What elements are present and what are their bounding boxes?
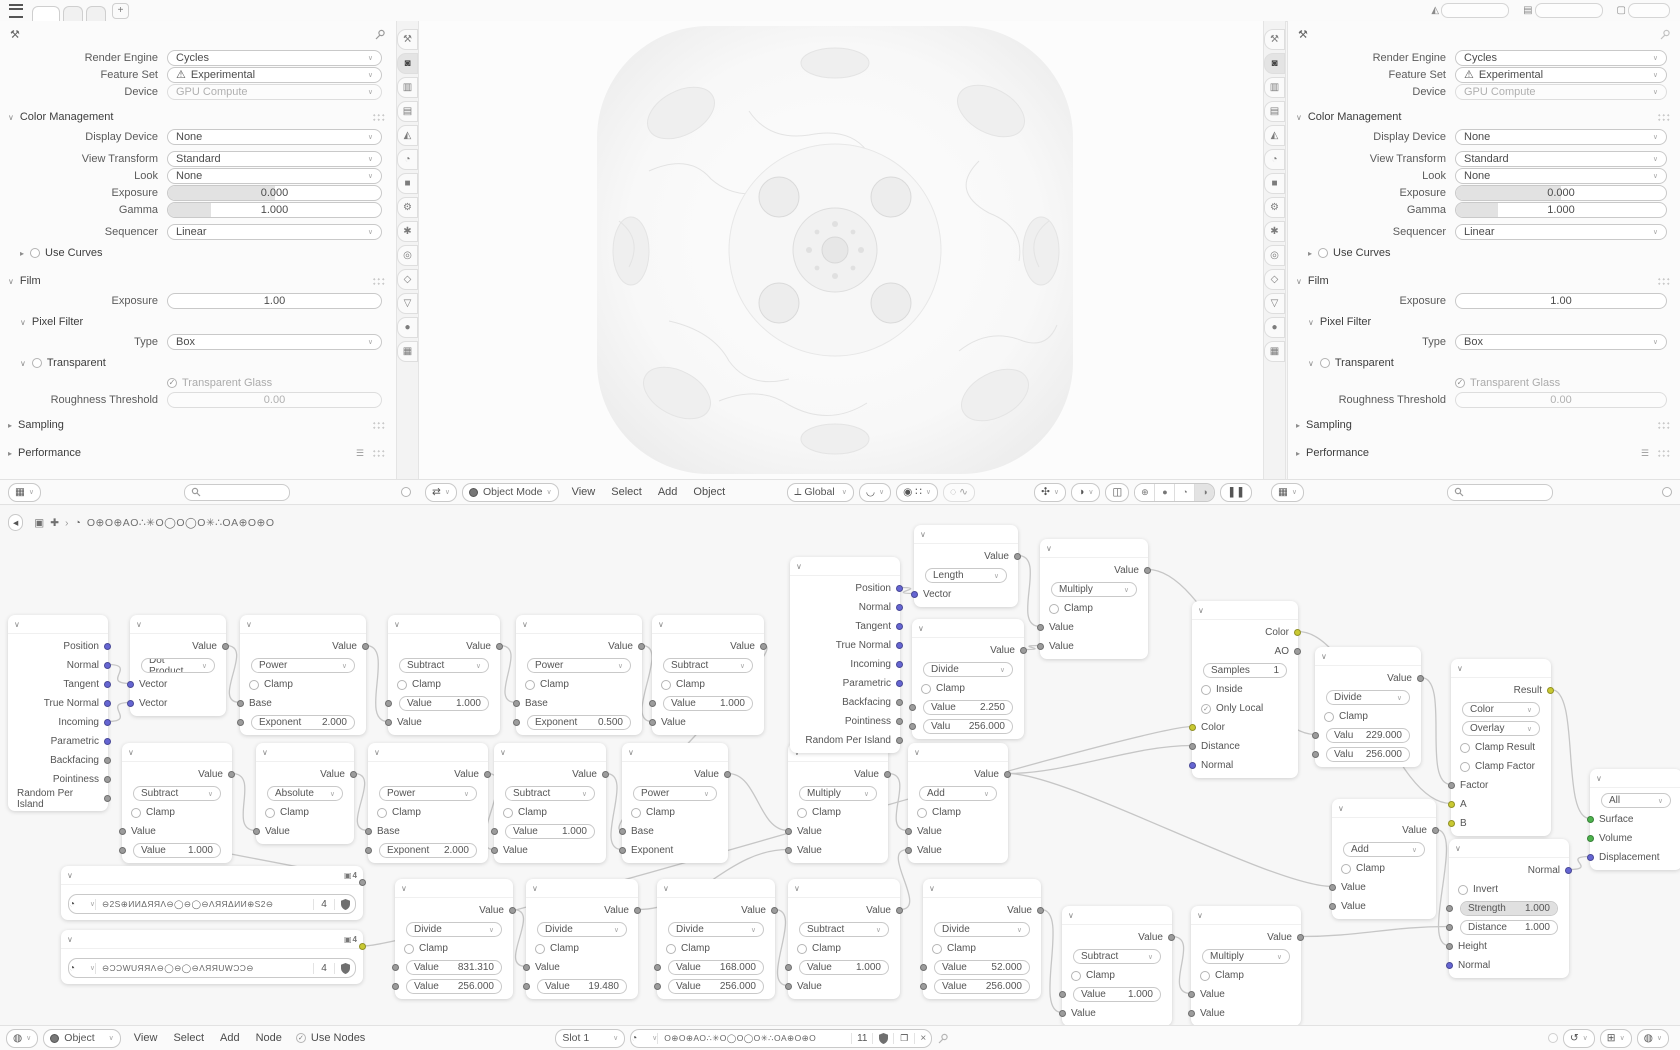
menu-select[interactable]: Select bbox=[611, 486, 642, 498]
math-divide[interactable]: ∨ValueDivide∨ClampValue831.310Value256.0… bbox=[395, 879, 513, 999]
node-collapse-arrow[interactable]: ∨ bbox=[1590, 769, 1680, 788]
input-socket-b[interactable] bbox=[1448, 820, 1455, 827]
input-socket-exponent[interactable] bbox=[619, 847, 626, 854]
math-add[interactable]: ∨ValueAdd∨ClampValueValue bbox=[908, 743, 1008, 863]
math-multiply[interactable]: ∨ValueMultiply∨ClampValueValue bbox=[1191, 906, 1301, 1026]
viewport-3d[interactable] bbox=[419, 21, 1263, 479]
node-collapse-arrow[interactable]: ∨ bbox=[790, 557, 900, 576]
value-field-value[interactable]: Value256.000 bbox=[668, 979, 764, 994]
properties-tab-3[interactable]: ▤ bbox=[1264, 101, 1285, 122]
math-subtract[interactable]: ∨ValueSubtract∨ClampValue1.000Value bbox=[788, 879, 900, 999]
value-field-value[interactable]: Value52.000 bbox=[934, 960, 1030, 975]
pin-icon[interactable] bbox=[1660, 29, 1671, 40]
node-collapse-arrow[interactable]: ∨ bbox=[908, 743, 1008, 762]
properties-tab-8[interactable]: ✱ bbox=[1264, 221, 1285, 242]
value-field-value[interactable]: Value1.000 bbox=[505, 824, 595, 839]
use-nodes-toggle[interactable]: ✓Use Nodes bbox=[296, 1032, 365, 1044]
value-field-valu[interactable]: Valu256.000 bbox=[923, 719, 1013, 734]
operation-dropdown[interactable]: Power∨ bbox=[379, 786, 477, 801]
checkbox-clamp[interactable]: Clamp bbox=[908, 803, 1008, 822]
node-collapse-arrow[interactable]: ∨ bbox=[1449, 839, 1569, 858]
search-input[interactable] bbox=[184, 484, 290, 501]
checkbox-clamp[interactable]: Clamp bbox=[526, 939, 638, 958]
properties-tab-10[interactable]: ◇ bbox=[1264, 269, 1285, 290]
output-socket-value[interactable] bbox=[1004, 771, 1011, 778]
math-divide[interactable]: ∨ValueDivide∨ClampValueValue19.480 bbox=[526, 879, 638, 999]
operation-dropdown[interactable]: Subtract∨ bbox=[663, 658, 753, 673]
value-field-exponent[interactable]: Exponent0.500 bbox=[527, 715, 631, 730]
math-multiply[interactable]: ∨ValueMultiply∨ClampValueValue bbox=[1040, 539, 1148, 659]
math-multiply[interactable]: ∨ValueMultiply∨ClampValueValue bbox=[788, 743, 888, 863]
checkbox-clamp[interactable]: Clamp bbox=[622, 803, 728, 822]
input-socket-value[interactable] bbox=[785, 847, 792, 854]
search-input[interactable] bbox=[1447, 484, 1553, 501]
checkbox-row-transparent-glass[interactable]: ✓Transparent Glass bbox=[1288, 374, 1680, 391]
output-socket-result[interactable] bbox=[1547, 687, 1554, 694]
input-socket-value[interactable] bbox=[385, 719, 392, 726]
input-socket-valu[interactable] bbox=[1312, 751, 1319, 758]
input-socket-vector[interactable] bbox=[127, 681, 134, 688]
fake-user-shield-icon[interactable] bbox=[334, 963, 355, 974]
input-socket-value[interactable] bbox=[392, 964, 399, 971]
output-socket-value[interactable] bbox=[884, 771, 891, 778]
input-socket-vector[interactable] bbox=[911, 591, 918, 598]
input-socket-base[interactable] bbox=[513, 700, 520, 707]
input-socket-value[interactable] bbox=[920, 983, 927, 990]
input-socket-value[interactable] bbox=[119, 847, 126, 854]
math-divide[interactable]: ∨ValueDivide∨ClampValue52.000Value256.00… bbox=[923, 879, 1041, 999]
input-socket-base[interactable] bbox=[365, 828, 372, 835]
input-socket-value[interactable] bbox=[491, 847, 498, 854]
gamma-slider[interactable]: 1.000 bbox=[167, 202, 382, 218]
output-socket-value[interactable] bbox=[1417, 675, 1424, 682]
output-socket-true-normal[interactable] bbox=[896, 642, 903, 649]
menu-add[interactable]: Add bbox=[220, 1032, 240, 1044]
input-socket-vector[interactable] bbox=[127, 700, 134, 707]
operation-dropdown[interactable]: Multiply∨ bbox=[1202, 949, 1290, 964]
value-field-value[interactable]: Value1.000 bbox=[1073, 987, 1161, 1002]
output-socket-value[interactable] bbox=[896, 907, 903, 914]
panel-header-color-management[interactable]: ∨Color Management bbox=[1288, 106, 1680, 128]
output-socket-value[interactable] bbox=[760, 643, 767, 650]
output-socket-incoming[interactable] bbox=[896, 661, 903, 668]
output-socket-ao[interactable] bbox=[1294, 648, 1301, 655]
math-subtract[interactable]: ∨ValueSubtract∨ClampValue1.000Value bbox=[1062, 906, 1172, 1026]
properties-tab-5[interactable]: ◔ bbox=[1264, 149, 1285, 170]
ambient-occlusion-node[interactable]: ∨ColorAOSamples1Inside✓Only LocalColorDi… bbox=[1192, 601, 1298, 778]
input-socket-value[interactable] bbox=[649, 719, 656, 726]
operation-dropdown[interactable]: Multiply∨ bbox=[799, 786, 877, 801]
device-dropdown[interactable]: GPU Compute∨ bbox=[167, 84, 382, 100]
math-power[interactable]: ∨ValuePower∨ClampBaseExponent0.500 bbox=[516, 615, 642, 735]
operation-dropdown[interactable]: Multiply∨ bbox=[1051, 582, 1137, 597]
pin-icon[interactable] bbox=[938, 1033, 949, 1044]
node-collapse-arrow[interactable]: ∨ bbox=[914, 525, 1018, 544]
properties-tab-4[interactable]: ◭ bbox=[1264, 125, 1285, 146]
overlays-dropdown[interactable]: ◑∨ bbox=[1071, 483, 1100, 502]
properties-tab-6[interactable]: ■ bbox=[1264, 173, 1285, 194]
feature-set-dropdown[interactable]: ⚠Experimental∨ bbox=[1455, 67, 1667, 83]
input-socket-value[interactable] bbox=[654, 964, 661, 971]
material-name-field[interactable]: O⊕O⊕AO∴✳O◯O◯O✳∴OA⊕O⊕O bbox=[658, 1033, 851, 1044]
value-field-value[interactable]: Value2.250 bbox=[923, 700, 1013, 715]
output-socket-normal[interactable] bbox=[1565, 867, 1572, 874]
value-field-value[interactable]: Value256.000 bbox=[406, 979, 502, 994]
panel-header-transparent[interactable]: ∨Transparent bbox=[1288, 352, 1680, 374]
input-socket-valu[interactable] bbox=[1312, 732, 1319, 739]
output-socket-pointiness[interactable] bbox=[896, 718, 903, 725]
checkbox-row-transparent-glass[interactable]: ✓Transparent Glass bbox=[0, 374, 396, 391]
checkbox-clamp[interactable]: Clamp bbox=[395, 939, 513, 958]
panel-header-film[interactable]: ∨Film bbox=[1288, 270, 1680, 292]
input-socket-value[interactable] bbox=[491, 828, 498, 835]
checkbox-invert[interactable]: Invert bbox=[1449, 880, 1569, 899]
menu-select[interactable]: Select bbox=[173, 1032, 204, 1044]
input-socket-base[interactable] bbox=[237, 700, 244, 707]
properties-editor-icon[interactable]: ⚒ bbox=[10, 28, 20, 41]
properties-editor-icon[interactable]: ⚒ bbox=[1298, 28, 1308, 41]
properties-tab-10[interactable]: ◇ bbox=[397, 269, 418, 290]
roughness-threshold-field[interactable]: 0.00 bbox=[167, 392, 382, 408]
properties-tab-4[interactable]: ◭ bbox=[397, 125, 418, 146]
value-field-value[interactable]: Value1.000 bbox=[399, 696, 489, 711]
output-socket-value[interactable] bbox=[1020, 647, 1027, 654]
pin-icon[interactable] bbox=[375, 29, 386, 40]
value-field-valu[interactable]: Valu229.000 bbox=[1326, 728, 1410, 743]
output-socket-value[interactable] bbox=[1144, 567, 1151, 574]
panel-header-transparent[interactable]: ∨Transparent bbox=[0, 352, 396, 374]
look-dropdown[interactable]: None∨ bbox=[1455, 168, 1667, 184]
value-field-exponent[interactable]: Exponent2.000 bbox=[379, 843, 477, 858]
checkbox-only-local[interactable]: ✓Only Local bbox=[1192, 699, 1298, 718]
display-device-dropdown[interactable]: None∨ bbox=[167, 129, 382, 145]
look-dropdown[interactable]: None∨ bbox=[167, 168, 382, 184]
checkbox-clamp[interactable]: Clamp bbox=[240, 675, 366, 694]
panel-header-sampling[interactable]: ▸Sampling bbox=[1288, 414, 1680, 436]
input-socket-value[interactable] bbox=[253, 828, 260, 835]
input-socket-distance[interactable] bbox=[1446, 924, 1453, 931]
output-socket[interactable] bbox=[359, 943, 366, 950]
output-socket-value[interactable] bbox=[509, 907, 516, 914]
menu-node[interactable]: Node bbox=[256, 1032, 282, 1044]
output-socket-position[interactable] bbox=[104, 643, 111, 650]
input-socket-strength[interactable] bbox=[1446, 905, 1453, 912]
shading-wireframe-button[interactable]: ⊕ bbox=[1135, 484, 1155, 501]
properties-tab-11[interactable]: ▽ bbox=[1264, 293, 1285, 314]
view-transform-dropdown[interactable]: Standard∨ bbox=[1455, 151, 1667, 167]
node-collapse-arrow[interactable]: ∨ bbox=[1332, 799, 1436, 818]
material-output-node[interactable]: ∨All∨SurfaceVolumeDisplacement bbox=[1590, 769, 1680, 870]
checkbox-clamp[interactable]: Clamp bbox=[788, 803, 888, 822]
checkbox-clamp[interactable]: Clamp bbox=[923, 939, 1041, 958]
menu-add[interactable]: Add bbox=[658, 486, 678, 498]
node-collapse-arrow[interactable]: ∨ bbox=[912, 619, 1024, 638]
math-divide[interactable]: ∨ValueDivide∨ClampValu229.000Valu256.000 bbox=[1315, 647, 1421, 767]
properties-tab-2[interactable]: ▥ bbox=[1264, 77, 1285, 98]
output-socket-random-per-island[interactable] bbox=[104, 795, 111, 802]
input-socket-value[interactable] bbox=[523, 964, 530, 971]
math-subtract[interactable]: ∨ValueSubtract∨ClampValue1.000Value bbox=[388, 615, 500, 735]
image-texture-node[interactable]: ∨▣4 ◔∨ ⊖ƆƆWUЯЯΛ⊖◯⊖◯⊖ΛЯЯUWƆƆ⊖ 4 bbox=[61, 930, 363, 984]
device-dropdown[interactable]: GPU Compute∨ bbox=[1455, 84, 1667, 100]
operation-dropdown[interactable]: Subtract∨ bbox=[133, 786, 221, 801]
output-socket-value[interactable] bbox=[1168, 934, 1175, 941]
xray-toggle[interactable]: ◫ bbox=[1105, 483, 1129, 502]
checkbox-clamp[interactable]: Clamp bbox=[516, 675, 642, 694]
image-browse-icon[interactable]: ◔∨ bbox=[69, 899, 96, 910]
output-socket-parametric[interactable] bbox=[104, 738, 111, 745]
panel-header-performance[interactable]: ▸Performance☰ bbox=[1288, 442, 1680, 464]
roughness-threshold-field[interactable]: 0.00 bbox=[1455, 392, 1667, 408]
properties-tab-1[interactable]: ◙ bbox=[1264, 53, 1285, 74]
workspace-tab[interactable] bbox=[86, 6, 106, 21]
input-socket-volume[interactable] bbox=[1587, 835, 1594, 842]
checkbox-clamp[interactable]: Clamp bbox=[1040, 599, 1148, 618]
operation-dropdown[interactable]: Dot Product∨ bbox=[141, 658, 215, 673]
input-socket-normal[interactable] bbox=[1446, 962, 1453, 969]
display-device-dropdown[interactable]: None∨ bbox=[1455, 129, 1667, 145]
checkbox-clamp[interactable]: Clamp bbox=[1062, 966, 1172, 985]
checkbox-clamp[interactable]: Clamp bbox=[368, 803, 488, 822]
output-socket-value[interactable] bbox=[484, 771, 491, 778]
geometry-node[interactable]: ∨PositionNormalTangentTrue NormalIncomin… bbox=[790, 557, 900, 753]
math-divide[interactable]: ∨ValueDivide∨ClampValue2.250Valu256.000 bbox=[912, 619, 1024, 739]
checkbox-clamp[interactable]: Clamp bbox=[657, 939, 775, 958]
value-field-distance[interactable]: Distance1.000 bbox=[1460, 920, 1558, 935]
input-socket-value[interactable] bbox=[785, 983, 792, 990]
checkbox-clamp[interactable]: Clamp bbox=[388, 675, 500, 694]
panel-header-use-curves[interactable]: ▸Use Curves bbox=[0, 242, 396, 264]
image-browse-icon[interactable]: ◔∨ bbox=[69, 963, 96, 974]
node-collapse-arrow[interactable]: ∨ bbox=[1451, 659, 1551, 678]
checkbox-clamp[interactable]: Clamp bbox=[912, 679, 1024, 698]
output-socket-parametric[interactable] bbox=[896, 680, 903, 687]
checkbox-clamp[interactable]: Clamp bbox=[788, 939, 900, 958]
properties-tab-13[interactable]: ▦ bbox=[1264, 341, 1285, 362]
node-collapse-arrow[interactable]: ∨ bbox=[1191, 906, 1301, 925]
node-collapse-arrow[interactable]: ∨ bbox=[494, 743, 606, 762]
node-collapse-arrow[interactable]: ∨ bbox=[788, 879, 900, 898]
fake-user-shield-icon[interactable] bbox=[334, 899, 355, 910]
operation-dropdown[interactable]: Divide∨ bbox=[923, 662, 1013, 677]
value-field-exponent[interactable]: Exponent2.000 bbox=[251, 715, 355, 730]
value-field-valu[interactable]: Valu256.000 bbox=[1326, 747, 1410, 762]
image-name-field[interactable]: ⊖2S⊕ИИΔЯЯΛ⊖◯⊖◯⊖ΛЯЯΔИИ⊕S2⊖ bbox=[96, 899, 313, 910]
output-socket-color[interactable] bbox=[1294, 629, 1301, 636]
output-socket-position[interactable] bbox=[896, 585, 903, 592]
input-socket-value[interactable] bbox=[1059, 1010, 1066, 1017]
panel-header-film[interactable]: ∨Film bbox=[0, 270, 396, 292]
type-dropdown[interactable]: Box∨ bbox=[1455, 334, 1667, 350]
panel-header-use-curves[interactable]: ▸Use Curves bbox=[1288, 242, 1680, 264]
workspace-tab[interactable] bbox=[63, 6, 83, 21]
input-socket-value[interactable] bbox=[649, 700, 656, 707]
output-socket-backfacing[interactable] bbox=[896, 699, 903, 706]
panel-checkbox[interactable] bbox=[1318, 248, 1328, 258]
output-socket-pointiness[interactable] bbox=[104, 776, 111, 783]
panel-checkbox[interactable] bbox=[30, 248, 40, 258]
add-workspace-button[interactable]: + bbox=[112, 3, 129, 19]
transform-orientation-dropdown[interactable]: ⟂ Global∨ bbox=[787, 483, 854, 502]
operation-dropdown[interactable]: Divide∨ bbox=[537, 922, 627, 937]
output-socket-value[interactable] bbox=[228, 771, 235, 778]
panel-checkbox[interactable] bbox=[32, 358, 42, 368]
menu-view[interactable]: View bbox=[572, 486, 596, 498]
operation-dropdown[interactable]: Subtract∨ bbox=[799, 922, 889, 937]
node-collapse-arrow[interactable]: ∨ bbox=[130, 615, 226, 634]
node-collapse-arrow[interactable]: ∨▣4 bbox=[61, 866, 363, 885]
pause-render-button[interactable]: ❚❚ bbox=[1220, 483, 1252, 502]
gamma-slider[interactable]: 1.000 bbox=[1455, 202, 1667, 218]
checkbox-clamp[interactable]: Clamp bbox=[652, 675, 764, 694]
editor-type-button[interactable]: ⇄∨ bbox=[425, 483, 457, 502]
editor-type-button[interactable]: ▦∨ bbox=[8, 483, 41, 502]
value-field-value[interactable]: Value256.000 bbox=[934, 979, 1030, 994]
operation-dropdown[interactable]: Length∨ bbox=[925, 568, 1007, 583]
snapping-mode-dropdown[interactable]: ⊞∨ bbox=[1600, 1029, 1632, 1048]
node-collapse-arrow[interactable]: ∨ bbox=[256, 743, 354, 762]
operation-dropdown[interactable]: Subtract∨ bbox=[1073, 949, 1161, 964]
output-socket-value[interactable] bbox=[638, 643, 645, 650]
output-socket-value[interactable] bbox=[1037, 907, 1044, 914]
input-socket-value[interactable] bbox=[909, 704, 916, 711]
input-socket-value[interactable] bbox=[905, 828, 912, 835]
operation-dropdown[interactable]: Power∨ bbox=[527, 658, 631, 673]
value-field-samples[interactable]: Samples1 bbox=[1203, 663, 1287, 678]
geometry-node[interactable]: ∨PositionNormalTangentTrue NormalIncomin… bbox=[8, 615, 108, 811]
material-users-count[interactable]: 11 bbox=[851, 1033, 872, 1044]
image-users-count[interactable]: 4 bbox=[313, 963, 334, 974]
output-socket-value[interactable] bbox=[1432, 827, 1439, 834]
checkbox-clamp[interactable]: Clamp bbox=[1315, 707, 1421, 726]
shader-type-dropdown[interactable]: Object∨ bbox=[43, 1029, 120, 1048]
panel-header-pixel-filter[interactable]: ∨Pixel Filter bbox=[0, 311, 396, 333]
node-collapse-arrow[interactable]: ∨ bbox=[657, 879, 775, 898]
math-power[interactable]: ∨ValuePower∨ClampBaseExponent2.000 bbox=[240, 615, 366, 735]
shading-solid-button[interactable]: ● bbox=[1155, 484, 1175, 501]
input-socket-distance[interactable] bbox=[1189, 743, 1196, 750]
math-power[interactable]: ∨ValuePower∨ClampBaseExponent bbox=[622, 743, 728, 863]
input-socket-value[interactable] bbox=[392, 983, 399, 990]
properties-tab-12[interactable]: ● bbox=[1264, 317, 1285, 338]
node-collapse-arrow[interactable]: ∨ bbox=[240, 615, 366, 634]
input-socket-value[interactable] bbox=[119, 828, 126, 835]
checkbox-clamp-result[interactable]: Clamp Result bbox=[1451, 738, 1551, 757]
shading-rendered-button[interactable]: ◑ bbox=[1195, 484, 1214, 501]
math-subtract[interactable]: ∨ValueSubtract∨ClampValue1.000Value bbox=[494, 743, 606, 863]
input-socket-valu[interactable] bbox=[909, 723, 916, 730]
input-socket-surface[interactable] bbox=[1587, 816, 1594, 823]
view-layer-selector[interactable]: ▤ bbox=[1523, 3, 1602, 18]
input-socket-height[interactable] bbox=[1446, 943, 1453, 950]
slot-dropdown[interactable]: Slot 1∨ bbox=[555, 1029, 625, 1048]
value-field-value[interactable]: Value1.000 bbox=[799, 960, 889, 975]
output-socket-value[interactable] bbox=[724, 771, 731, 778]
value-field-value[interactable]: Value1.000 bbox=[663, 696, 753, 711]
output-socket-tangent[interactable] bbox=[104, 681, 111, 688]
panel-header-performance[interactable]: ▸Performance☰ bbox=[0, 442, 396, 464]
output-socket-value[interactable] bbox=[634, 907, 641, 914]
properties-tab-9[interactable]: ◎ bbox=[397, 245, 418, 266]
input-socket-value[interactable] bbox=[1188, 991, 1195, 998]
input-socket-factor[interactable] bbox=[1448, 782, 1455, 789]
panel-header-color-management[interactable]: ∨Color Management bbox=[0, 106, 396, 128]
input-socket-exponent[interactable] bbox=[237, 719, 244, 726]
operation-dropdown[interactable]: Add∨ bbox=[919, 786, 997, 801]
input-socket-base[interactable] bbox=[619, 828, 626, 835]
properties-tab-5[interactable]: ◔ bbox=[397, 149, 418, 170]
properties-tab-9[interactable]: ◎ bbox=[1264, 245, 1285, 266]
math-add[interactable]: ∨ValueAdd∨ClampValueValue bbox=[1332, 799, 1436, 919]
checkbox-clamp[interactable]: Clamp bbox=[256, 803, 354, 822]
menu-object[interactable]: Object bbox=[693, 486, 725, 498]
properties-tab-3[interactable]: ▤ bbox=[397, 101, 418, 122]
output-socket-random-per-island[interactable] bbox=[896, 737, 903, 744]
node-collapse-arrow[interactable]: ∨ bbox=[516, 615, 642, 634]
operation-dropdown[interactable]: Divide∨ bbox=[934, 922, 1030, 937]
properties-tab-7[interactable]: ⚙ bbox=[1264, 197, 1285, 218]
operation-dropdown[interactable]: Color∨ bbox=[1462, 702, 1540, 717]
input-socket-value[interactable] bbox=[1188, 1010, 1195, 1017]
math-subtract[interactable]: ∨ValueSubtract∨ClampValue1.000Value bbox=[652, 615, 764, 735]
image-texture-node[interactable]: ∨▣4 ◔∨ ⊖2S⊕ИИΔЯЯΛ⊖◯⊖◯⊖ΛЯЯΔИИ⊕S2⊖ 4 bbox=[61, 866, 363, 920]
feature-set-dropdown[interactable]: ⚠Experimental∨ bbox=[167, 67, 382, 83]
shader-node-editor[interactable]: ◂ ▣ ✚ › ◔ O⊕O⊕AO∴✳O◯O◯O✳∴OA⊕O⊕O ∨Positio… bbox=[0, 506, 1680, 1050]
output-socket-value[interactable] bbox=[1014, 553, 1021, 560]
output-socket-true-normal[interactable] bbox=[104, 700, 111, 707]
node-collapse-arrow[interactable]: ∨ bbox=[526, 879, 638, 898]
snap-toggle[interactable] bbox=[1548, 1033, 1558, 1043]
node-collapse-arrow[interactable]: ∨ bbox=[395, 879, 513, 898]
output-socket[interactable] bbox=[359, 879, 366, 886]
node-collapse-arrow[interactable]: ∨ bbox=[8, 615, 108, 634]
output-socket-value[interactable] bbox=[602, 771, 609, 778]
node-collapse-arrow[interactable]: ∨ bbox=[1040, 539, 1148, 558]
input-socket-value[interactable] bbox=[523, 983, 530, 990]
node-collapse-arrow[interactable]: ∨ bbox=[1192, 601, 1298, 620]
properties-tab-2[interactable]: ▥ bbox=[397, 77, 418, 98]
input-socket-value[interactable] bbox=[654, 983, 661, 990]
input-socket-normal[interactable] bbox=[1189, 762, 1196, 769]
value-field-value[interactable]: Value168.000 bbox=[668, 960, 764, 975]
node-collapse-arrow[interactable]: ∨ bbox=[622, 743, 728, 762]
properties-tab-8[interactable]: ✱ bbox=[397, 221, 418, 242]
output-socket-value[interactable] bbox=[771, 907, 778, 914]
input-socket-value[interactable] bbox=[1329, 884, 1336, 891]
image-users-count[interactable]: 4 bbox=[313, 899, 334, 910]
properties-tab-11[interactable]: ▽ bbox=[397, 293, 418, 314]
node-collapse-arrow[interactable]: ∨ bbox=[388, 615, 500, 634]
type-dropdown[interactable]: Box∨ bbox=[167, 334, 382, 350]
menu-view[interactable]: View bbox=[134, 1032, 158, 1044]
render-engine-dropdown[interactable]: Cycles∨ bbox=[1455, 50, 1667, 66]
view-transform-dropdown[interactable]: Standard∨ bbox=[167, 151, 382, 167]
copy-material-button[interactable]: ❐ bbox=[893, 1033, 914, 1044]
input-socket-value[interactable] bbox=[1037, 643, 1044, 650]
output-socket-incoming[interactable] bbox=[104, 719, 111, 726]
node-collapse-arrow[interactable]: ∨ bbox=[923, 879, 1041, 898]
image-name-field[interactable]: ⊖ƆƆWUЯЯΛ⊖◯⊖◯⊖ΛЯЯUWƆƆ⊖ bbox=[96, 963, 313, 974]
value-field-strength[interactable]: Strength1.000 bbox=[1460, 901, 1558, 916]
input-socket-color[interactable] bbox=[1189, 724, 1196, 731]
panel-header-pixel-filter[interactable]: ∨Pixel Filter bbox=[1288, 311, 1680, 333]
input-socket-value[interactable] bbox=[785, 828, 792, 835]
render-engine-dropdown[interactable]: Cycles∨ bbox=[167, 50, 382, 66]
operation-dropdown[interactable]: Absolute∨ bbox=[267, 786, 343, 801]
output-socket-value[interactable] bbox=[362, 643, 369, 650]
properties-tab-12[interactable]: ● bbox=[397, 317, 418, 338]
node-collapse-arrow[interactable]: ∨ bbox=[122, 743, 232, 762]
